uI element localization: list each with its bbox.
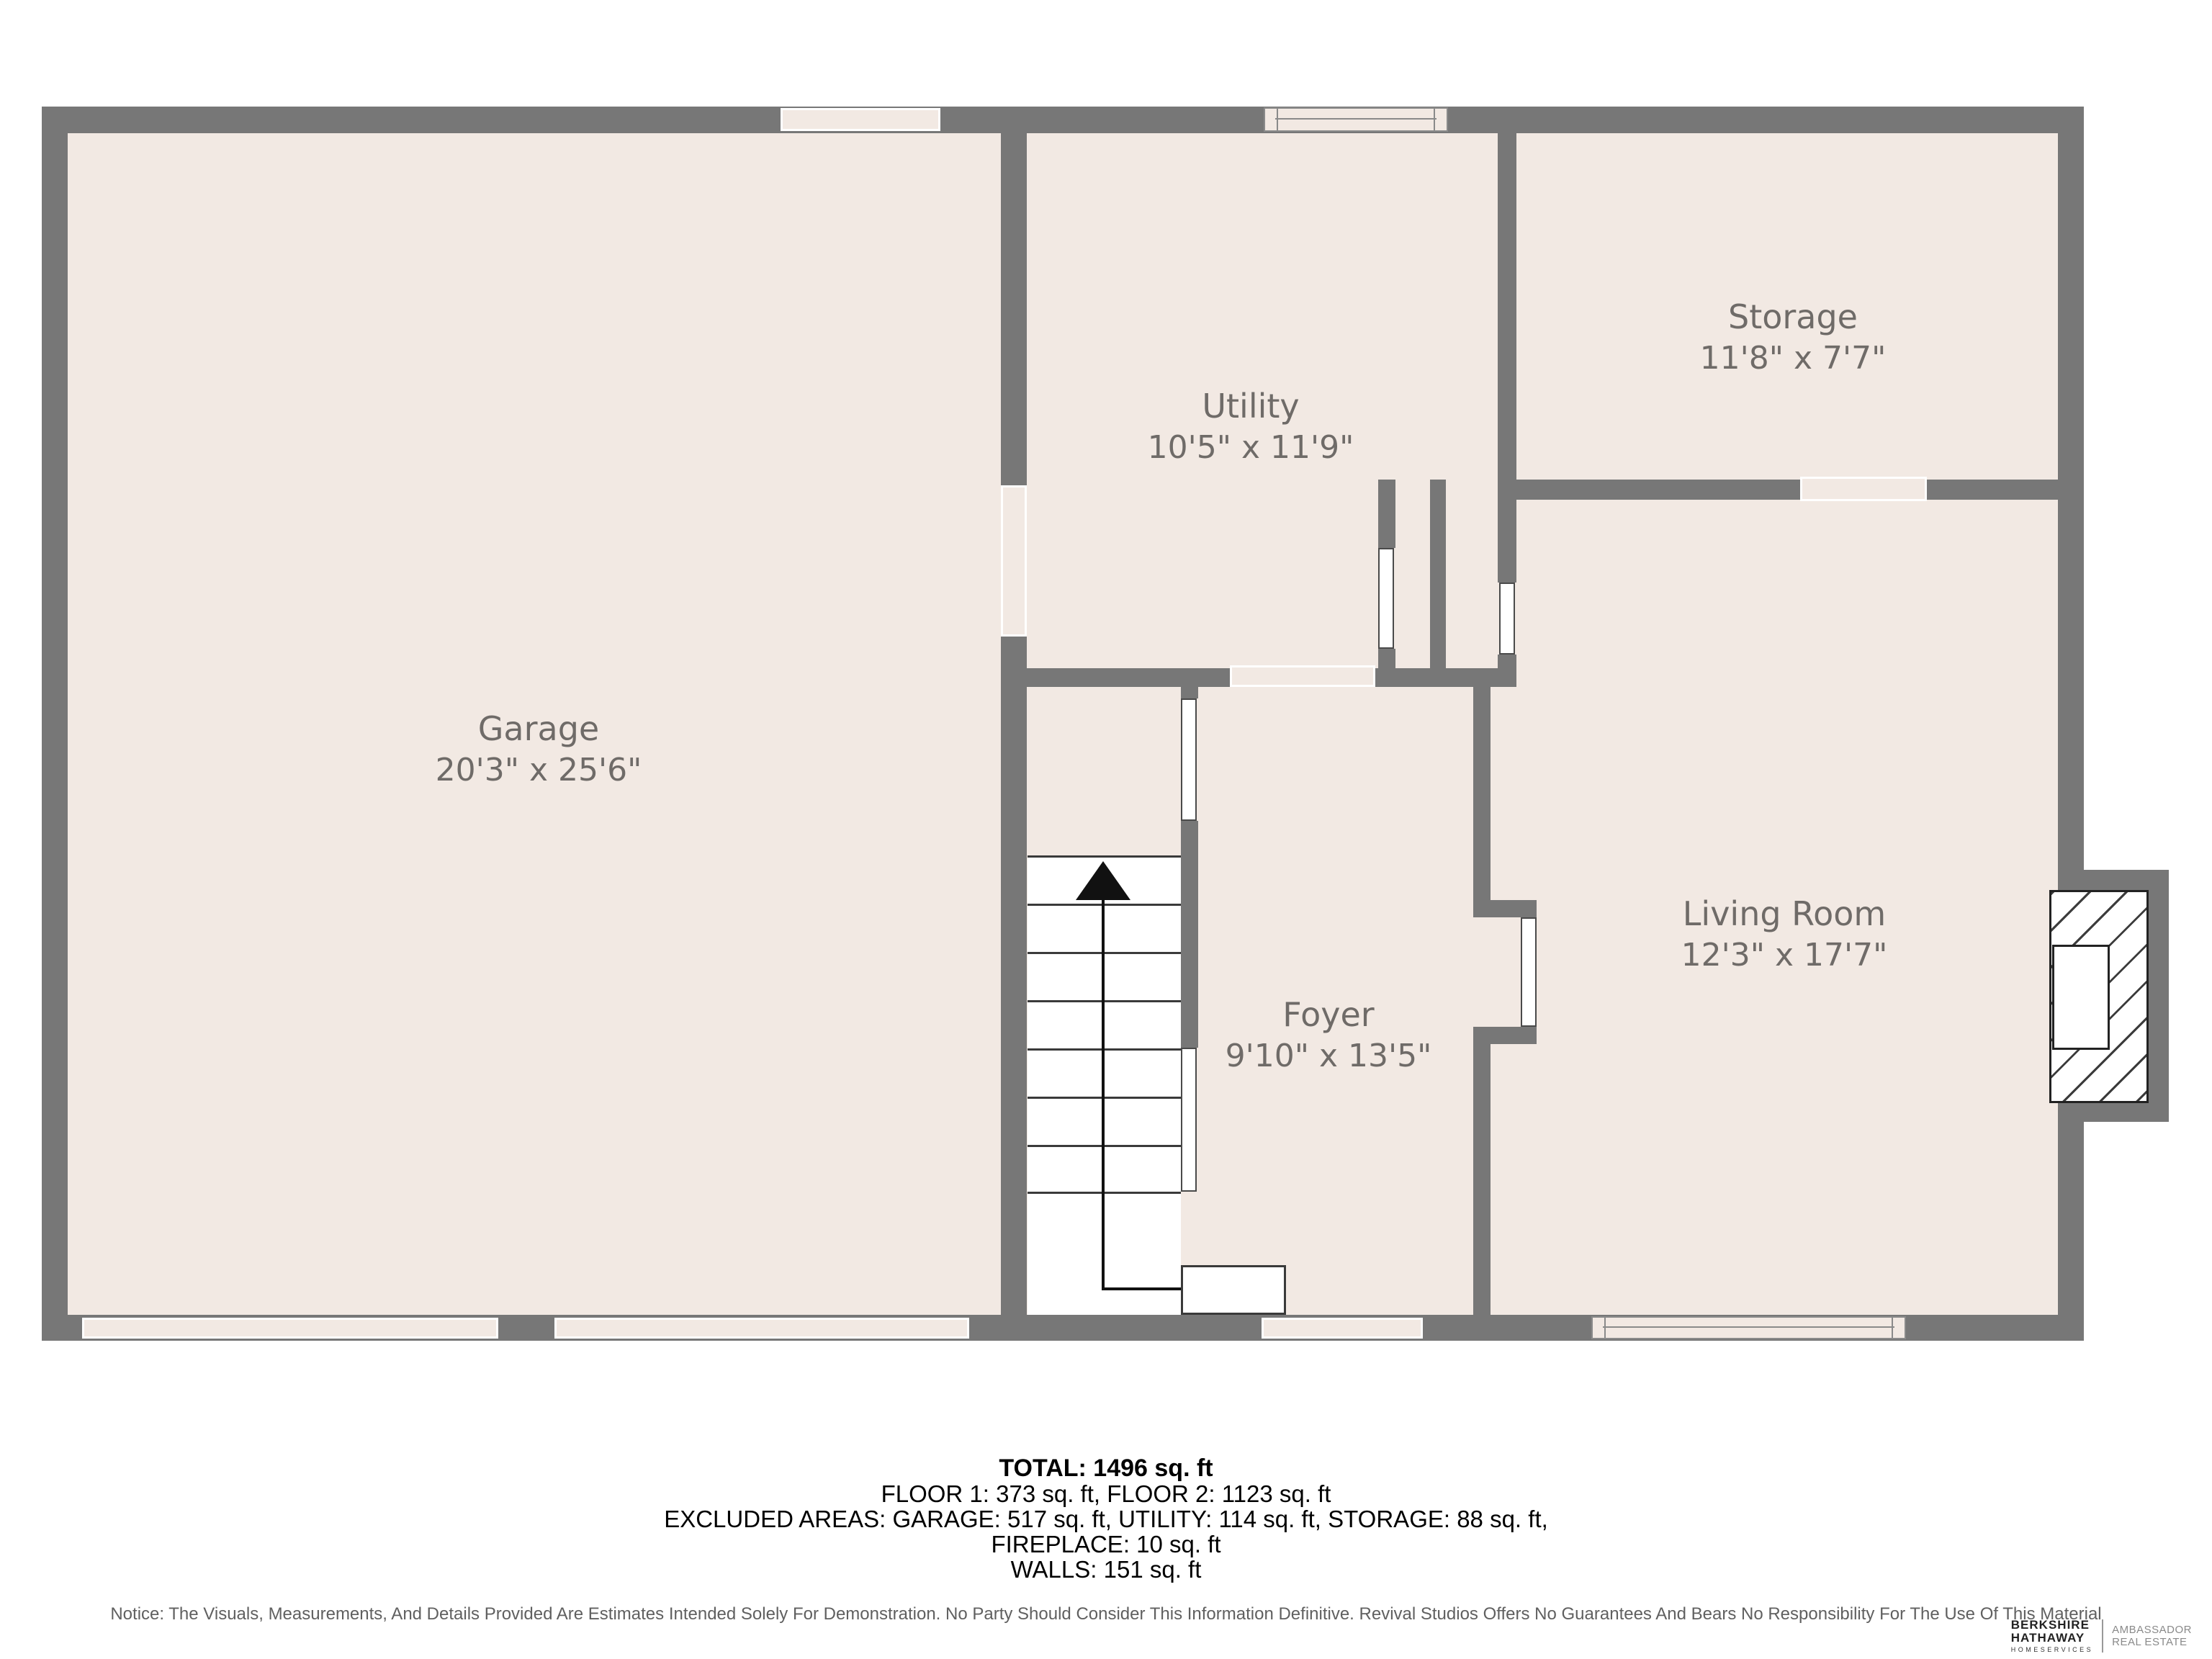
understairs-door-leaf — [1181, 1048, 1197, 1192]
area-summary: TOTAL: 1496 sq. ft FLOOR 1: 373 sq. ft, … — [0, 1456, 2212, 1582]
vestibule-right-door-leaf — [1499, 583, 1515, 655]
disclaimer-notice: Notice: The Visuals, Measurements, And D… — [0, 1604, 2212, 1624]
summary-total: TOTAL: 1496 sq. ft — [0, 1456, 2212, 1481]
window-frame-left-icon — [1277, 109, 1278, 130]
garage-overhead-door-left — [82, 1318, 498, 1339]
wall-exterior-left — [42, 107, 68, 1341]
summary-fireplace: FIREPLACE: 10 sq. ft — [0, 1532, 2212, 1557]
logo-brand-line1: BERKSHIRE — [2011, 1619, 2093, 1632]
living-room-window — [1591, 1316, 1906, 1339]
room-name: Garage — [436, 709, 642, 750]
wall-foyer-living-jamb-top — [1473, 900, 1537, 917]
utility-window — [1264, 107, 1448, 132]
wall-vestibule-right-upper — [1498, 480, 1516, 583]
summary-excluded: EXCLUDED AREAS: GARAGE: 517 sq. ft, UTIL… — [0, 1506, 2212, 1532]
room-dimensions: 20'3" x 25'6" — [436, 750, 642, 789]
room-name: Living Room — [1681, 894, 1888, 935]
window-mullion-icon — [1603, 1326, 1894, 1328]
wall-utility-bottom-left — [1018, 668, 1230, 687]
room-dimensions: 9'10" x 13'5" — [1226, 1035, 1432, 1075]
stairs-up-arrow-tail — [1102, 1287, 1181, 1290]
room-label-storage: Storage 11'8" x 7'7" — [1700, 297, 1887, 378]
room-name: Foyer — [1226, 994, 1432, 1036]
logo-divider — [2102, 1619, 2103, 1653]
summary-floors: FLOOR 1: 373 sq. ft, FLOOR 2: 1123 sq. f… — [0, 1481, 2212, 1506]
wall-exterior-top — [42, 107, 2084, 133]
wall-stair-right — [1181, 821, 1198, 1048]
wall-vestibule-middle — [1430, 480, 1446, 687]
wall-vestibule-left-upper — [1378, 480, 1395, 548]
window-frame-left-icon — [1604, 1318, 1606, 1338]
foyer-living-door-leaf — [1521, 917, 1537, 1027]
front-door-opening — [1262, 1318, 1423, 1339]
room-label-utility: Utility 10'5" x 11'9" — [1148, 386, 1354, 467]
window-frame-right-icon — [1892, 1318, 1893, 1338]
room-dimensions: 10'5" x 11'9" — [1148, 427, 1354, 467]
wall-utility-bottom-right — [1375, 668, 1516, 687]
room-label-living-room: Living Room 12'3" x 17'7" — [1681, 894, 1888, 975]
stair-landing — [1181, 1265, 1286, 1315]
utility-foyer-door-leaf — [1181, 698, 1197, 821]
stairs-up-arrow-icon — [1076, 861, 1130, 900]
logo-agency-block: AMBASSADOR REAL ESTATE — [2112, 1624, 2192, 1648]
utility-door-opening — [1230, 665, 1375, 687]
wall-garage-divider — [1001, 133, 1027, 1315]
fireplace-firebox — [2052, 945, 2110, 1050]
vestibule-left-door-leaf — [1378, 548, 1394, 649]
garage-side-door-opening — [1001, 485, 1027, 637]
logo-brand-sub: HOMESERVICES — [2011, 1646, 2093, 1653]
window-frame-right-icon — [1434, 109, 1435, 130]
wall-stair-door-stub — [1181, 687, 1198, 698]
wall-foyer-living-jamb-bottom — [1473, 1027, 1537, 1044]
logo-brand-line2: HATHAWAY — [2011, 1632, 2093, 1645]
room-name: Storage — [1700, 297, 1887, 338]
wall-exterior-right — [2058, 107, 2084, 1341]
garage-overhead-door-right — [554, 1318, 969, 1339]
logo-brand-block: BERKSHIRE HATHAWAY HOMESERVICES — [2011, 1619, 2093, 1653]
logo-agency-line1: AMBASSADOR — [2112, 1624, 2192, 1636]
wall-foyer-living-upper — [1473, 687, 1491, 900]
brokerage-logo: BERKSHIRE HATHAWAY HOMESERVICES AMBASSAD… — [2011, 1619, 2192, 1653]
wall-foyer-living-lower — [1473, 1044, 1491, 1315]
room-dimensions: 11'8" x 7'7" — [1700, 338, 1887, 377]
logo-agency-line2: REAL ESTATE — [2112, 1636, 2192, 1648]
room-dimensions: 12'3" x 17'7" — [1681, 935, 1888, 974]
storage-door-opening — [1800, 477, 1927, 501]
room-name: Utility — [1148, 386, 1354, 428]
stairs-up-arrow-shaft — [1102, 893, 1105, 1290]
wall-storage-bottom — [1498, 480, 2058, 500]
summary-walls: WALLS: 151 sq. ft — [0, 1557, 2212, 1582]
room-label-foyer: Foyer 9'10" x 13'5" — [1226, 994, 1432, 1076]
wall-utility-storage-divider — [1498, 133, 1516, 480]
garage-top-door-opening — [781, 108, 940, 131]
floor-plan-page: Garage 20'3" x 25'6" Utility 10'5" x 11'… — [0, 0, 2212, 1659]
window-mullion-icon — [1275, 118, 1437, 120]
room-label-garage: Garage 20'3" x 25'6" — [436, 709, 642, 790]
